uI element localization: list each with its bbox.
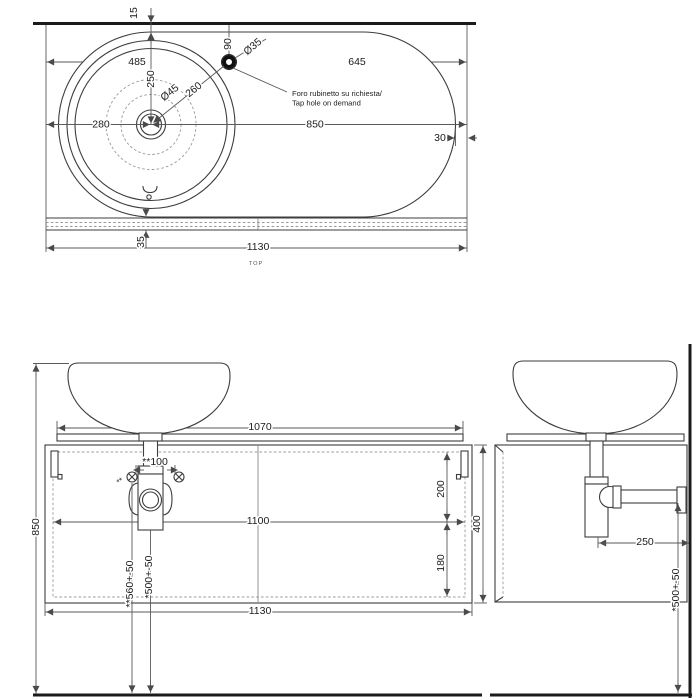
dim-label-500-front: *500+-50	[143, 555, 155, 598]
vessel-bowl-side	[513, 361, 677, 434]
front-strip	[46, 218, 467, 230]
dim-label-645: 645	[348, 56, 366, 68]
view-label-top: TOP	[249, 261, 263, 267]
dim-label-screw-span: **100	[142, 456, 168, 468]
dim-label-1070: 1070	[248, 421, 272, 433]
dim-label-280: 280	[92, 118, 110, 130]
tap-note-line2: Tap hole on demand	[292, 99, 361, 108]
dim-label-1130-front: 1130	[249, 605, 272, 617]
dim-label-560: **560+-50	[124, 560, 136, 607]
dim-label-180: 180	[435, 554, 447, 572]
tap-note-line1: Foro rubinetto su richiesta/	[292, 89, 383, 98]
dim-label-35: 35	[135, 236, 147, 248]
top-view: 15 485 250 90 Ø35 645 280 Ø45 260 850 30…	[33, 7, 477, 267]
washbasin-technical-drawing: 15 485 250 90 Ø35 645 280 Ø45 260 850 30…	[0, 0, 700, 700]
dim-label-850-top: 850	[306, 118, 324, 130]
counter-slab-front	[57, 434, 463, 441]
dim-label-15: 15	[128, 7, 140, 19]
vessel-bowl-front	[68, 363, 230, 434]
fixing-screw-right	[174, 472, 184, 482]
dim-label-200: 200	[435, 480, 447, 498]
dim-label-250: 250	[145, 70, 157, 88]
dim-label-1100: 1100	[247, 515, 270, 527]
dim-label-30: 30	[434, 132, 446, 144]
dim-label-485: 485	[128, 56, 146, 68]
drawing-sheet: 15 485 250 90 Ø35 645 280 Ø45 260 850 30…	[0, 0, 700, 700]
fixing-screw-left	[127, 472, 137, 482]
side-view: 250 *500+-50	[490, 344, 692, 698]
dim-label-90: 90	[222, 38, 234, 50]
dim-label-850-front: 850	[30, 518, 42, 536]
dim-label-400: 400	[471, 515, 483, 533]
dim-label-250: 250	[636, 536, 654, 548]
dim-label-1130-top: 1130	[247, 241, 270, 253]
dim-label-500-side: *500+-50	[670, 568, 682, 611]
front-view: 850 1070 **100 ** 1100 200 180 400 **560…	[30, 363, 487, 695]
